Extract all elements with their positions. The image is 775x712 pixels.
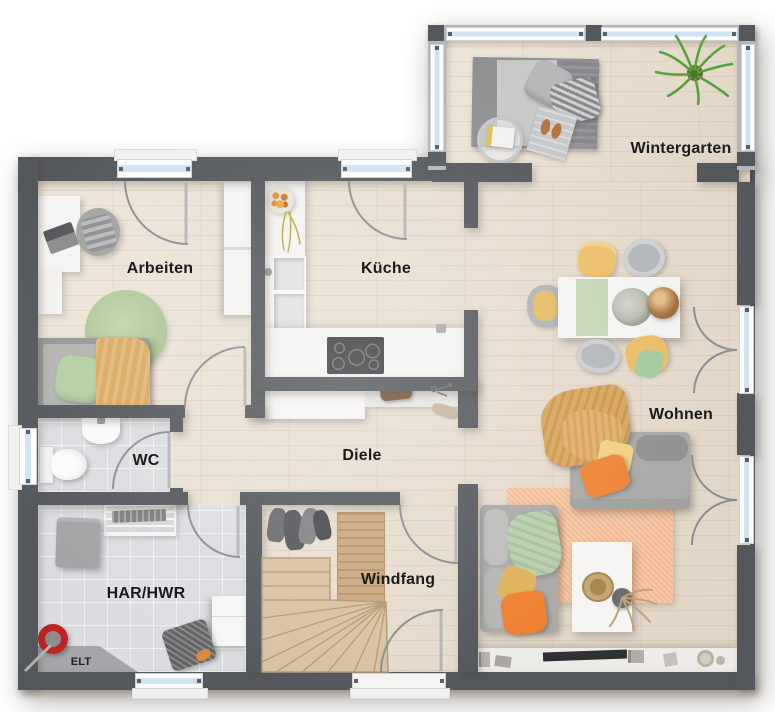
decor-books <box>628 650 644 663</box>
table-bowl <box>647 287 679 319</box>
dining-chair-yellow <box>576 240 618 280</box>
storage-box <box>55 517 101 569</box>
sofa-left-cushion <box>484 509 508 565</box>
palm-pot <box>687 65 703 81</box>
bed-blanket <box>96 338 150 412</box>
wall <box>38 492 188 505</box>
window <box>135 673 203 689</box>
wc-sink-faucet <box>97 417 105 424</box>
corner-post <box>428 152 446 166</box>
wintergarten-window <box>741 44 755 151</box>
wall <box>240 492 262 505</box>
corner-post <box>428 25 444 41</box>
floor-plan: Wintergarten Arbeiten Küche Wohnen Diele… <box>0 0 775 712</box>
wall <box>38 405 185 418</box>
wintergarten-window <box>601 27 738 41</box>
room-label-wintergarten: Wintergarten <box>631 140 732 158</box>
island-faucet <box>436 324 446 333</box>
mullion-post <box>586 25 602 41</box>
corner-post <box>737 152 755 166</box>
room-label-kueche: Küche <box>361 260 411 278</box>
entry-door <box>352 673 446 689</box>
window-sill <box>132 688 208 699</box>
table-bouquet <box>612 288 652 326</box>
wall <box>432 163 532 182</box>
wintergarten-window <box>446 27 585 41</box>
room-label-arbeiten: Arbeiten <box>127 260 194 278</box>
washing-machine <box>212 596 248 646</box>
wall <box>262 492 400 505</box>
wall <box>246 505 262 672</box>
wall <box>737 545 755 690</box>
wall <box>170 418 183 432</box>
entry-step <box>350 688 450 699</box>
wall <box>458 390 478 428</box>
vacuum-cleaner <box>38 624 68 654</box>
room-label-wohnen: Wohnen <box>649 406 713 424</box>
kitchen-faucet <box>264 268 272 276</box>
window <box>19 428 37 485</box>
wall <box>458 484 478 672</box>
corner-post <box>739 25 755 41</box>
decor-books <box>479 652 490 667</box>
kitchen-sink-basin-2 <box>272 292 306 330</box>
woven-bowl <box>582 572 614 602</box>
wall <box>245 405 265 418</box>
wall <box>18 157 38 690</box>
french-door-window <box>739 306 754 394</box>
stair-mat <box>337 512 385 604</box>
kitchen-sink-basin-1 <box>272 256 306 292</box>
pillow-orange-2 <box>499 589 548 637</box>
console-cabinet <box>263 391 365 419</box>
plant-vase <box>612 588 632 608</box>
decor-books <box>663 652 678 667</box>
decor-vase <box>697 650 714 667</box>
cooktop <box>327 337 384 374</box>
wintergarten-window <box>430 44 444 151</box>
room-label-har-hwr: HAR/HWR <box>107 585 186 603</box>
table-runner <box>576 279 608 336</box>
room-label-windfang: Windfang <box>361 571 435 589</box>
wall <box>697 163 739 182</box>
book <box>486 126 515 149</box>
wall <box>253 377 478 391</box>
dining-chair-cushion <box>532 290 558 322</box>
room-label-diele: Diele <box>342 447 381 465</box>
decor-vase <box>716 656 725 665</box>
sofa-top-headrest <box>636 435 688 461</box>
room-label-elt: ELT <box>71 656 92 668</box>
fruit-bowl <box>266 186 294 214</box>
wall <box>737 393 755 455</box>
decor-books <box>494 655 511 668</box>
window <box>341 159 412 178</box>
french-door-window <box>739 456 754 544</box>
clothes-gray <box>112 509 166 523</box>
toilet-bowl <box>51 449 87 480</box>
room-label-wc: WC <box>132 452 159 470</box>
desk-return <box>38 270 62 314</box>
wall <box>464 181 478 228</box>
window <box>117 159 192 178</box>
wall <box>737 182 755 305</box>
